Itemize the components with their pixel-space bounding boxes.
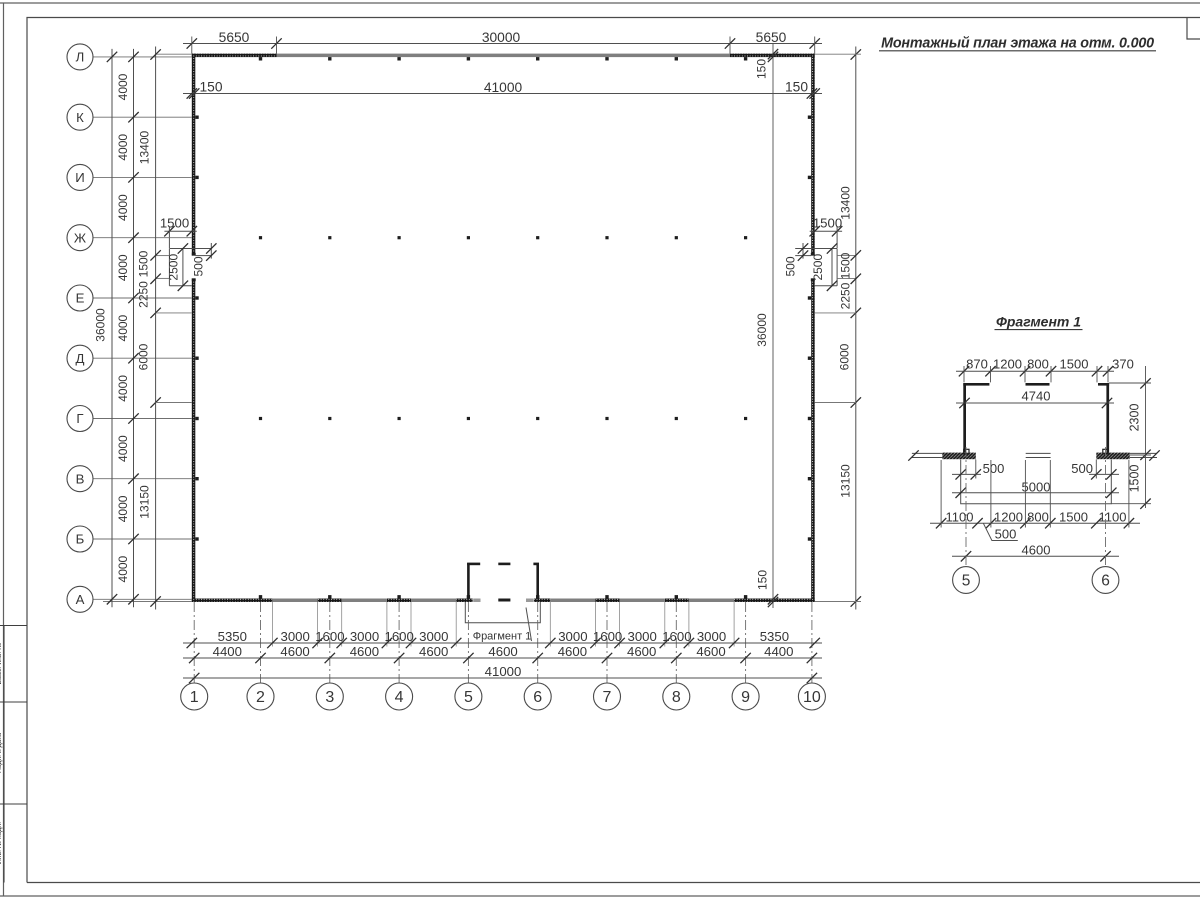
svg-text:7: 7 [603,689,612,706]
svg-text:4600: 4600 [627,644,656,659]
svg-text:500: 500 [192,256,206,276]
svg-text:3000: 3000 [419,629,448,644]
svg-text:41000: 41000 [485,664,522,679]
svg-text:10: 10 [803,689,821,706]
svg-text:1500: 1500 [160,216,189,231]
svg-text:4600: 4600 [558,644,587,659]
svg-text:4400: 4400 [213,644,242,659]
svg-text:Ж: Ж [74,230,86,245]
svg-text:500: 500 [784,256,798,276]
svg-text:1100: 1100 [1099,510,1127,525]
svg-text:Монтажный план этажа на отм. 0: Монтажный план этажа на отм. 0.000 [881,36,1154,52]
svg-text:4000: 4000 [116,435,130,462]
svg-text:150: 150 [756,570,770,590]
svg-text:13400: 13400 [138,130,152,164]
svg-text:5650: 5650 [219,30,250,45]
svg-text:2250: 2250 [839,282,853,309]
svg-text:6: 6 [1101,572,1110,589]
svg-text:800: 800 [1027,356,1049,371]
svg-text:41000: 41000 [484,80,523,95]
svg-text:4: 4 [395,689,404,706]
svg-text:6: 6 [533,689,542,706]
svg-text:Б: Б [76,532,85,547]
svg-text:500: 500 [1071,461,1093,476]
svg-text:13400: 13400 [839,186,853,220]
svg-text:1500: 1500 [1059,510,1088,525]
svg-text:1500: 1500 [1060,356,1089,371]
svg-text:Л: Л [76,50,85,65]
svg-text:4000: 4000 [116,134,130,161]
svg-text:4600: 4600 [419,644,448,659]
svg-text:2: 2 [256,689,265,706]
svg-text:3: 3 [325,689,334,706]
svg-text:1600: 1600 [593,629,622,644]
svg-text:4000: 4000 [116,375,130,402]
svg-text:4000: 4000 [116,194,130,221]
svg-text:А: А [76,592,85,607]
svg-text:4000: 4000 [116,314,130,341]
svg-text:1500: 1500 [137,250,151,277]
svg-text:36000: 36000 [755,313,769,347]
svg-text:500: 500 [995,527,1017,542]
svg-text:4600: 4600 [488,644,517,659]
svg-text:13150: 13150 [138,485,152,519]
svg-text:3000: 3000 [350,629,379,644]
svg-text:30000: 30000 [482,30,521,45]
svg-text:Е: Е [76,291,85,306]
svg-text:2500: 2500 [166,254,180,281]
svg-text:1600: 1600 [385,629,414,644]
svg-text:500: 500 [983,461,1005,476]
svg-text:4000: 4000 [116,73,130,100]
svg-text:370: 370 [1112,356,1134,371]
svg-text:1200: 1200 [993,356,1022,371]
svg-text:Д: Д [76,351,85,366]
svg-text:6000: 6000 [137,343,151,370]
svg-text:9: 9 [741,689,750,706]
svg-text:1600: 1600 [662,629,691,644]
svg-text:Г: Г [76,411,83,426]
svg-text:1200: 1200 [994,510,1023,525]
svg-text:Инв. № подл.: Инв. № подл. [0,822,3,864]
svg-text:36000: 36000 [94,308,108,342]
svg-text:4600: 4600 [280,644,309,659]
svg-text:1100: 1100 [946,510,974,525]
svg-text:Фрагмент 1: Фрагмент 1 [473,631,532,643]
svg-text:150: 150 [785,80,808,95]
svg-text:5650: 5650 [756,30,787,45]
svg-text:5: 5 [464,689,473,706]
svg-text:13150: 13150 [839,464,853,498]
svg-text:3000: 3000 [558,629,587,644]
svg-text:150: 150 [199,80,222,95]
svg-text:2250: 2250 [137,281,151,308]
svg-text:3000: 3000 [628,629,657,644]
svg-text:150: 150 [755,59,769,79]
svg-text:5350: 5350 [218,629,247,644]
svg-text:В: В [76,471,85,486]
svg-text:1500: 1500 [1128,465,1142,493]
svg-text:Подп. и дата: Подп. и дата [0,733,3,773]
svg-text:4600: 4600 [696,644,725,659]
svg-text:4740: 4740 [1022,389,1051,404]
svg-text:800: 800 [1027,510,1049,525]
svg-text:1: 1 [190,689,199,706]
svg-text:8: 8 [672,689,681,706]
svg-text:4600: 4600 [1022,542,1051,557]
svg-text:Взам. инв. №: Взам. инв. № [0,642,3,684]
svg-text:870: 870 [966,356,988,371]
svg-text:3000: 3000 [281,629,310,644]
svg-text:Фрагмент 1: Фрагмент 1 [996,314,1081,330]
svg-text:2500: 2500 [811,254,825,281]
svg-text:4600: 4600 [350,644,379,659]
svg-text:К: К [76,110,84,125]
svg-text:4000: 4000 [116,555,130,582]
svg-text:5350: 5350 [760,629,789,644]
svg-text:1500: 1500 [839,252,853,279]
svg-text:4000: 4000 [116,495,130,522]
svg-text:3000: 3000 [697,629,726,644]
svg-text:1600: 1600 [315,629,344,644]
svg-text:И: И [75,170,84,185]
svg-text:5: 5 [962,572,971,589]
svg-text:6000: 6000 [838,343,852,370]
svg-text:2300: 2300 [1128,404,1142,432]
svg-text:5000: 5000 [1022,479,1051,494]
svg-text:4400: 4400 [764,644,793,659]
svg-text:4000: 4000 [116,254,130,281]
